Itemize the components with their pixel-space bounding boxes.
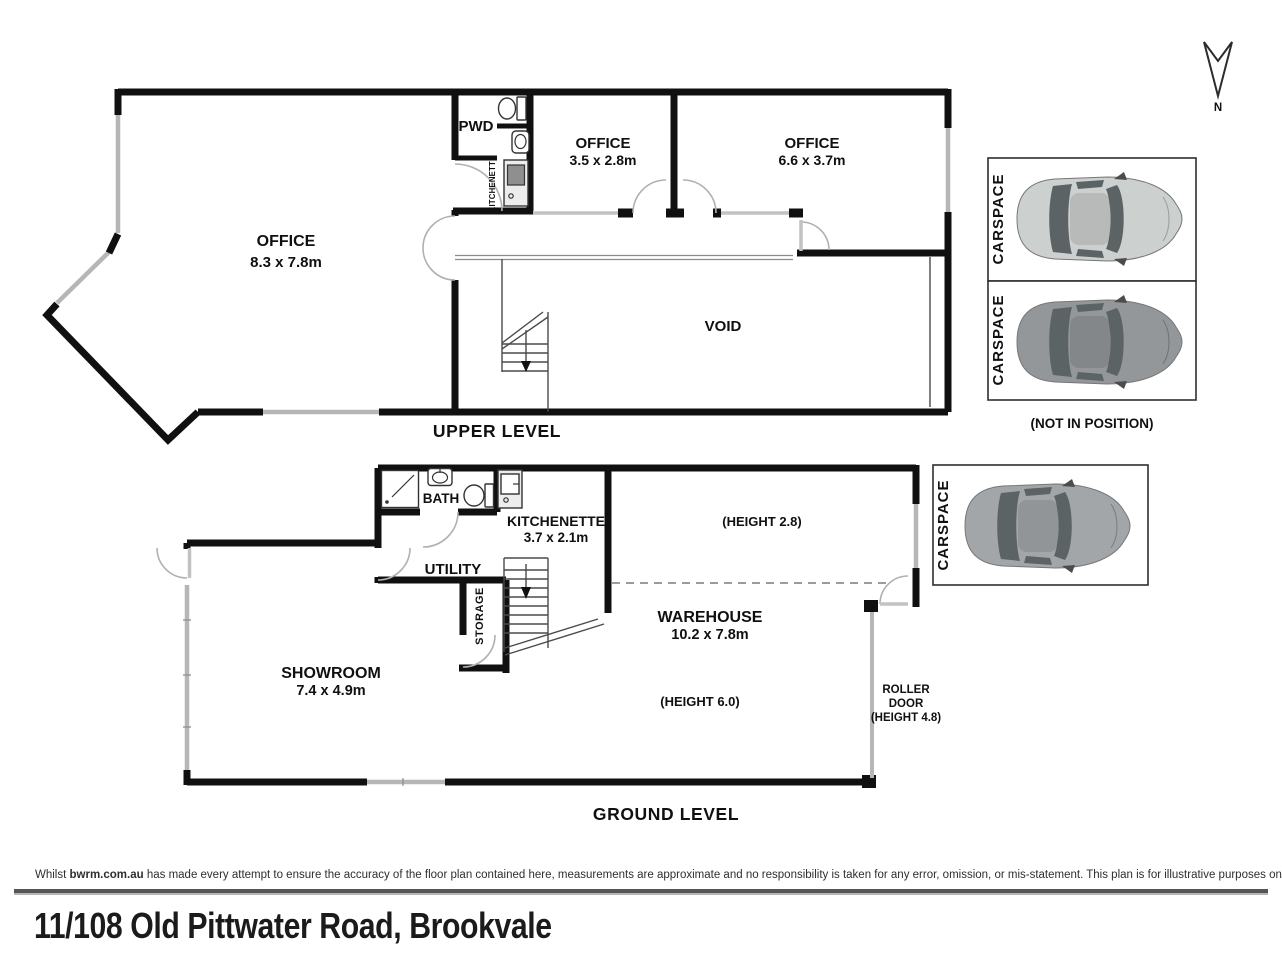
not-in-position-note: (NOT IN POSITION) [1031, 416, 1154, 431]
upper-carspaces: CARSPACE CARSPACE (NOT IN POSITION) [988, 158, 1196, 431]
void-label: VOID [705, 318, 742, 335]
height-note-2-8: (HEIGHT 2.8) [722, 514, 801, 529]
carspace-bottom-label: CARSPACE [990, 294, 1007, 385]
ground-level-caption: GROUND LEVEL [593, 804, 739, 824]
showroom-label: SHOWROOM [281, 665, 381, 682]
utility-label: UTILITY [425, 561, 482, 578]
office-small-label: OFFICE [576, 135, 631, 152]
ground-kitchenette-label: KITCHENETTE [507, 513, 605, 529]
pwd-sink-icon [512, 131, 529, 153]
warehouse-dims: 10.2 x 7.8m [671, 627, 748, 643]
upper-level-caption: UPPER LEVEL [433, 421, 561, 441]
roller-door-note-line2: DOOR [889, 698, 924, 710]
upper-corridor-glazing [455, 213, 803, 260]
ground-carspace: CARSPACE [933, 465, 1148, 585]
ground-kitchenette-unit-icon [498, 470, 522, 508]
roller-door-note-line3: (HEIGHT 4.8) [871, 712, 941, 724]
ground-window-ticks [183, 620, 403, 786]
upper-stairs [502, 312, 548, 412]
north-arrow-icon [1204, 42, 1232, 96]
bath-toilet-icon [464, 484, 494, 507]
bath-label: BATH [423, 491, 460, 506]
divider-rule [14, 889, 1268, 893]
page-title: 11/108 Old Pittwater Road, Brookvale [34, 905, 552, 947]
office-wide-dims: 6.6 x 3.7m [779, 152, 846, 168]
shower-icon [382, 471, 419, 508]
disclaimer-prefix: Whilst [35, 869, 70, 881]
showroom-dims: 7.4 x 4.9m [296, 683, 365, 699]
ground-kitchenette-dims: 3.7 x 2.1m [524, 530, 589, 545]
upper-kitchenette-unit-icon [504, 160, 528, 206]
warehouse-label: WAREHOUSE [658, 609, 763, 626]
ground-stairs [504, 558, 604, 655]
compass: N [1204, 42, 1232, 114]
door-corner-block [864, 600, 878, 612]
pwd-toilet-icon [499, 97, 527, 120]
north-label: N [1214, 102, 1222, 114]
upper-level-plan: OFFICE 8.3 x 7.8m OFFICE 3.5 x 2.8m OFFI… [47, 89, 948, 441]
disclaimer-rest: has made every attempt to ensure the acc… [144, 869, 1282, 881]
height-note-6-0: (HEIGHT 6.0) [660, 694, 739, 709]
bath-sink-icon [428, 469, 452, 486]
upper-doors [423, 164, 829, 280]
storage-label: STORAGE [474, 587, 486, 645]
upper-kitchenette-label: KITCHENETTE [488, 156, 497, 213]
disclaimer: Whilst bwrm.com.au has made every attemp… [35, 869, 1250, 881]
floorplan-canvas: OFFICE 8.3 x 7.8m OFFICE 3.5 x 2.8m OFFI… [0, 0, 1282, 860]
carspace-ground-label: CARSPACE [935, 479, 952, 570]
ground-level-plan: SHOWROOM 7.4 x 4.9m WAREHOUSE 10.2 x 7.8… [157, 465, 941, 824]
roller-door-note-line1: ROLLER [882, 684, 930, 696]
office-main-label: OFFICE [257, 233, 316, 250]
disclaimer-brand: bwrm.com.au [70, 869, 144, 881]
office-wide-label: OFFICE [785, 135, 840, 152]
office-small-dims: 3.5 x 2.8m [570, 152, 637, 168]
carspace-top-label: CARSPACE [990, 173, 1007, 264]
office-main-dims: 8.3 x 7.8m [250, 254, 322, 271]
pwd-label: PWD [459, 118, 494, 135]
